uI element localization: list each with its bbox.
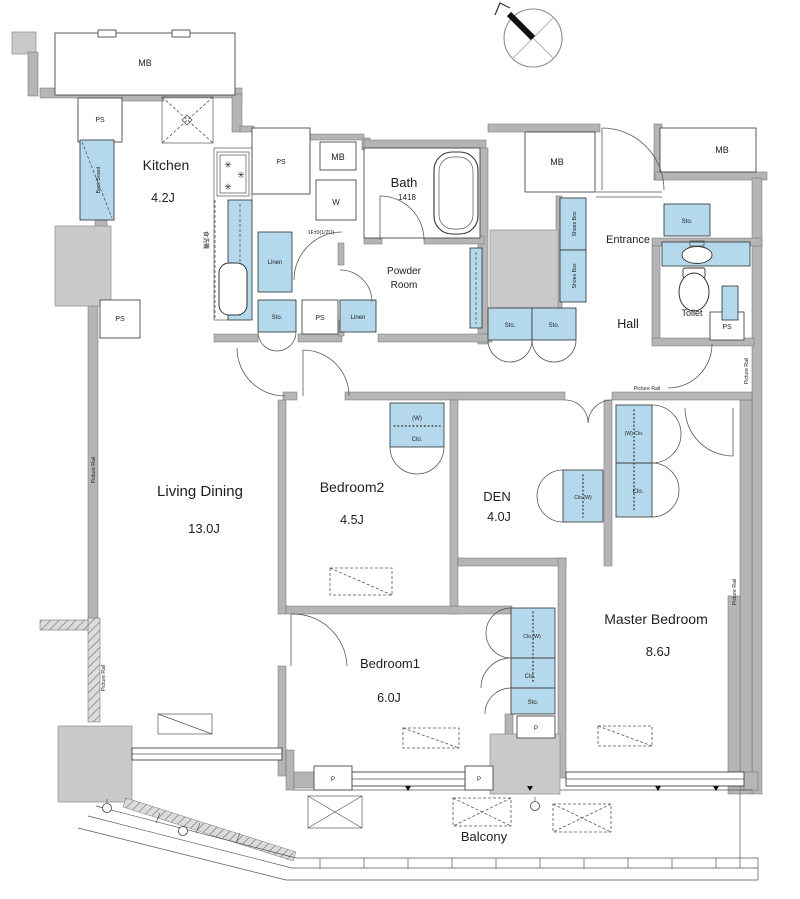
room-size-bath: 1418 xyxy=(398,193,416,202)
washbasin xyxy=(682,247,712,264)
burner-icon: ✳ xyxy=(224,160,232,170)
railing xyxy=(96,806,758,858)
north-arrow-head xyxy=(495,3,510,15)
column xyxy=(490,734,560,794)
room-label-bedroom2: Bedroom2 xyxy=(320,479,385,495)
dishwasher-label: 食洗機 xyxy=(202,231,210,249)
meter-box-label: MB xyxy=(331,152,345,162)
pipe-space-label: PS xyxy=(115,316,125,323)
picture-rail-label: Picture Rail xyxy=(744,358,750,385)
master-door xyxy=(685,408,733,456)
closet-label: Clo. xyxy=(412,437,423,443)
pipe-space-label: PS xyxy=(95,117,105,124)
closet-label: Clo.(W) xyxy=(574,495,592,501)
pillar-label: P xyxy=(534,726,538,732)
north-arrow xyxy=(509,14,533,38)
powder-door xyxy=(340,270,372,302)
meter-box-label: MB xyxy=(550,157,564,167)
room-label-living: Living Dining xyxy=(157,483,243,500)
storage-label: Sto. xyxy=(549,323,560,329)
meter-box-label: MB xyxy=(138,58,152,68)
beam-mark xyxy=(598,726,652,746)
room-size-bedroom2: 4.5J xyxy=(340,513,364,527)
room-label-powder-1: Powder xyxy=(387,266,422,277)
railing xyxy=(78,828,758,880)
picture-rail-label: Picture Rail xyxy=(101,665,107,692)
toilet-door xyxy=(668,344,712,388)
room-label-kitchen: Kitchen xyxy=(143,157,190,173)
room-size-kitchen: 4.2J xyxy=(151,191,175,205)
corridor-door xyxy=(294,232,342,280)
burner-icon: ✳ xyxy=(237,170,245,180)
hose-bib xyxy=(179,827,188,836)
balcony xyxy=(78,794,758,880)
hose-bib xyxy=(103,804,112,813)
pipe-space-label: PS xyxy=(315,315,325,322)
column xyxy=(490,230,558,308)
room-label-balcony: Balcony xyxy=(461,829,508,844)
walls xyxy=(12,32,767,794)
room-label-bedroom1: Bedroom1 xyxy=(360,656,420,671)
pipe-space-label: PS xyxy=(722,324,732,331)
room-size-master: 8.6J xyxy=(646,644,671,659)
room-label-toilet: Toilet xyxy=(681,308,703,318)
range-hood xyxy=(162,97,213,143)
room-label-master: Master Bedroom xyxy=(604,611,707,627)
closet-label: Clo.(W) xyxy=(523,634,541,640)
room-label-bath: Bath xyxy=(391,175,418,190)
hose-bib xyxy=(531,802,540,811)
meter-box-label: MB xyxy=(715,145,729,155)
den-door xyxy=(565,400,588,423)
back-board-label: Back Board xyxy=(96,166,102,193)
room-label-hall: Hall xyxy=(617,317,639,331)
living-door xyxy=(237,348,285,396)
picture-rail-label: Picture Rail xyxy=(634,386,661,392)
room-size-den: 4.0J xyxy=(487,510,511,524)
storage-label: Sto. xyxy=(528,700,539,706)
floor-plan: ✳ ✳ ✳ xyxy=(0,0,800,899)
pillar-label: P xyxy=(477,777,481,783)
pillar-label: P xyxy=(331,777,335,783)
kitchen-sink xyxy=(219,263,247,315)
column xyxy=(58,726,132,802)
shoes-box-label: Shoes Box xyxy=(572,211,578,236)
room-size-bedroom1: 6.0J xyxy=(377,691,401,705)
floor-plan-drawing: ✳ ✳ ✳ xyxy=(0,0,800,899)
toilet-cabinet xyxy=(722,286,738,320)
closet-label: Clo. xyxy=(633,489,644,495)
compass xyxy=(495,3,562,67)
burner-icon: ✳ xyxy=(224,182,232,192)
room-size-living: 13.0J xyxy=(188,521,220,536)
storage-label: Sto. xyxy=(272,315,283,321)
washer-note: 1F±0(1/2O) xyxy=(308,230,335,236)
closet-label: Clo. xyxy=(525,674,536,680)
room-label-den: DEN xyxy=(483,489,510,504)
pipe-space-label: PS xyxy=(276,159,286,166)
bedroom1-door xyxy=(291,614,347,666)
storage-label: Sto. xyxy=(505,323,516,329)
column xyxy=(55,226,111,306)
closet-label: (W) Clo. xyxy=(624,431,643,437)
washing-machine-label: W xyxy=(332,198,340,207)
storage-label: Sto. xyxy=(682,219,693,225)
linen-label: Linen xyxy=(268,260,283,266)
meter-box xyxy=(660,128,756,172)
w-mark-label: (W) xyxy=(412,416,422,422)
picture-rail-label: Picture Rail xyxy=(732,579,738,606)
bedroom2-door xyxy=(303,350,349,396)
toilet-bowl xyxy=(679,273,709,311)
linen-label: Linen xyxy=(351,315,366,321)
picture-rail-label: Picture Rail xyxy=(91,457,97,484)
shoes-box-label: Shoes Box xyxy=(572,263,578,288)
room-label-powder-2: Room xyxy=(391,280,418,291)
room-label-entrance: Entrance xyxy=(606,234,650,246)
windows xyxy=(132,748,744,791)
